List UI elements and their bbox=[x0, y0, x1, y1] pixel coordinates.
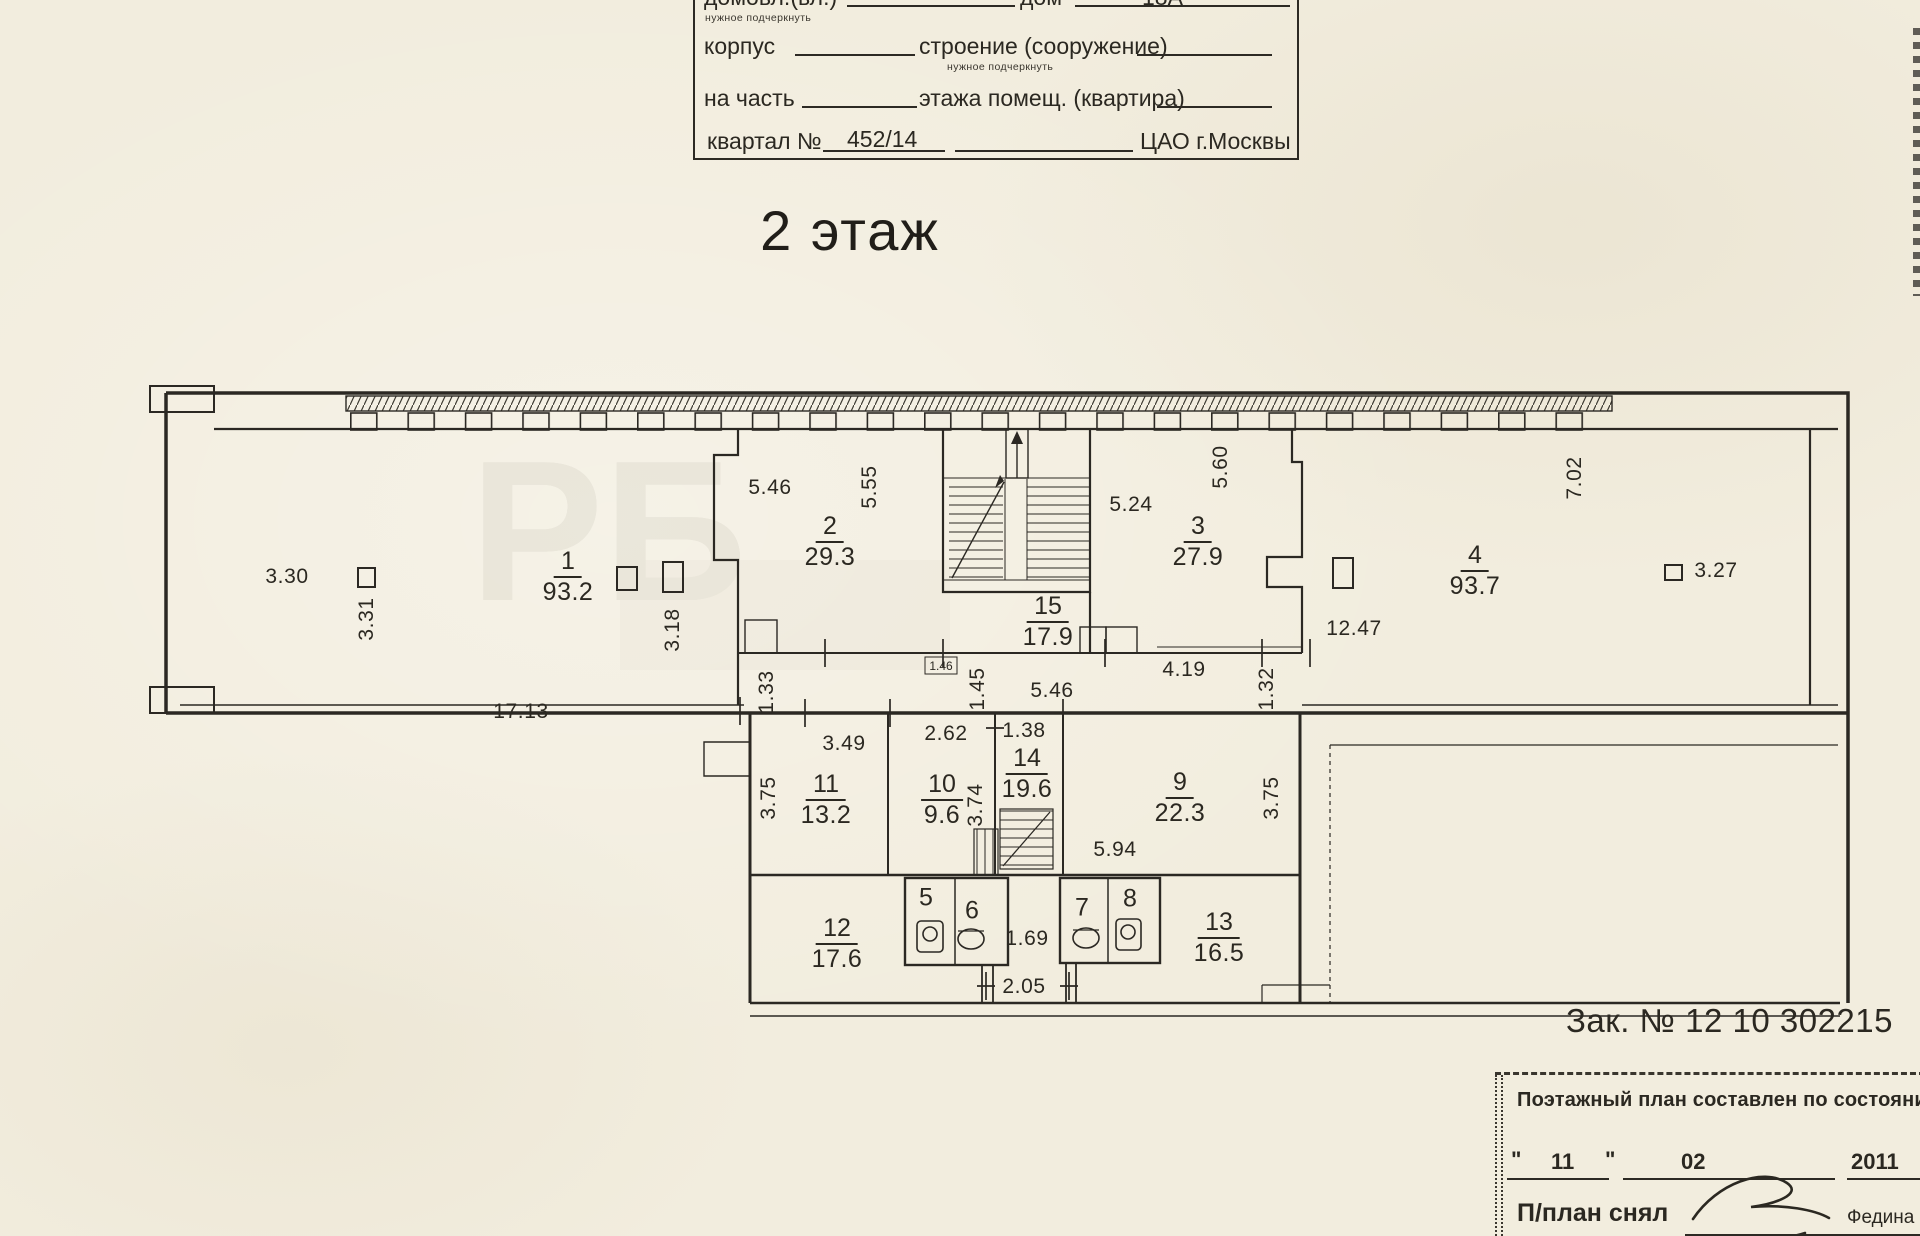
toilet-icon bbox=[917, 921, 943, 952]
form-value-district: ЦАО г.Москвы bbox=[1140, 128, 1291, 155]
blank-line bbox=[823, 149, 945, 152]
form-label-ownership: домовл.(вл.) bbox=[704, 0, 837, 11]
stair-arrows bbox=[995, 431, 1023, 488]
floor-plan-drawing: РБ РБ bbox=[0, 0, 1920, 1236]
header-address-form: домовл.(вл.) дом 18А нужное подчеркнуть … bbox=[693, 0, 1299, 160]
blank-line bbox=[802, 105, 917, 108]
footer-title: Поэтажный план составлен по состоянию bbox=[1517, 1089, 1920, 1112]
surveyor-label: П/план снял bbox=[1517, 1199, 1668, 1228]
form-note-underline: нужное подчеркнуть bbox=[947, 61, 1053, 73]
toilet-icon bbox=[1121, 925, 1135, 939]
toilet-icon bbox=[923, 927, 937, 941]
footer-survey-form: Поэтажный план составлен по состоянию " … bbox=[1495, 1072, 1920, 1236]
page-title: 2 этаж bbox=[690, 198, 1010, 263]
signature bbox=[1687, 1167, 1857, 1236]
toilet-icon bbox=[958, 929, 984, 949]
form-label-stroenie: строение (сооружение) bbox=[919, 33, 1168, 60]
blank-line bbox=[1507, 1177, 1609, 1180]
watermark: РБ РБ bbox=[470, 420, 950, 670]
toilet-icon bbox=[1073, 928, 1099, 948]
service-stair bbox=[974, 809, 1053, 875]
form-label-korpus: корпус bbox=[704, 33, 775, 60]
date-day: 11 bbox=[1551, 1149, 1574, 1175]
scan-edge-artifact bbox=[1913, 28, 1920, 296]
blank-line bbox=[795, 53, 915, 56]
order-number: Зак. № 12 10 302215 bbox=[1566, 1002, 1893, 1040]
blank-line bbox=[955, 149, 1133, 152]
main-stair-flights bbox=[949, 479, 1089, 579]
blank-line bbox=[1157, 105, 1272, 108]
form-label-part: на часть bbox=[704, 85, 795, 112]
blank-line bbox=[847, 4, 1015, 7]
window-band bbox=[346, 396, 1612, 431]
form-label-floor-premises: этажа помещ. (квартира) bbox=[919, 85, 1185, 112]
blank-line bbox=[1137, 53, 1272, 56]
toilet-icon bbox=[1116, 919, 1141, 950]
form-value-house: 18А bbox=[1142, 0, 1183, 11]
quote-mark: " bbox=[1605, 1147, 1615, 1173]
blank-line bbox=[1847, 1177, 1920, 1180]
form-note-underline: нужное подчеркнуть bbox=[705, 12, 811, 24]
form-label-house: дом bbox=[1020, 0, 1062, 11]
surveyor-name: Федина Н bbox=[1847, 1207, 1920, 1229]
scanned-floor-plan-page: РБ РБ bbox=[0, 0, 1920, 1236]
quote-mark: " bbox=[1511, 1147, 1521, 1173]
date-year: 2011 bbox=[1851, 1149, 1899, 1175]
form-label-kvartal: квартал № bbox=[707, 128, 822, 155]
